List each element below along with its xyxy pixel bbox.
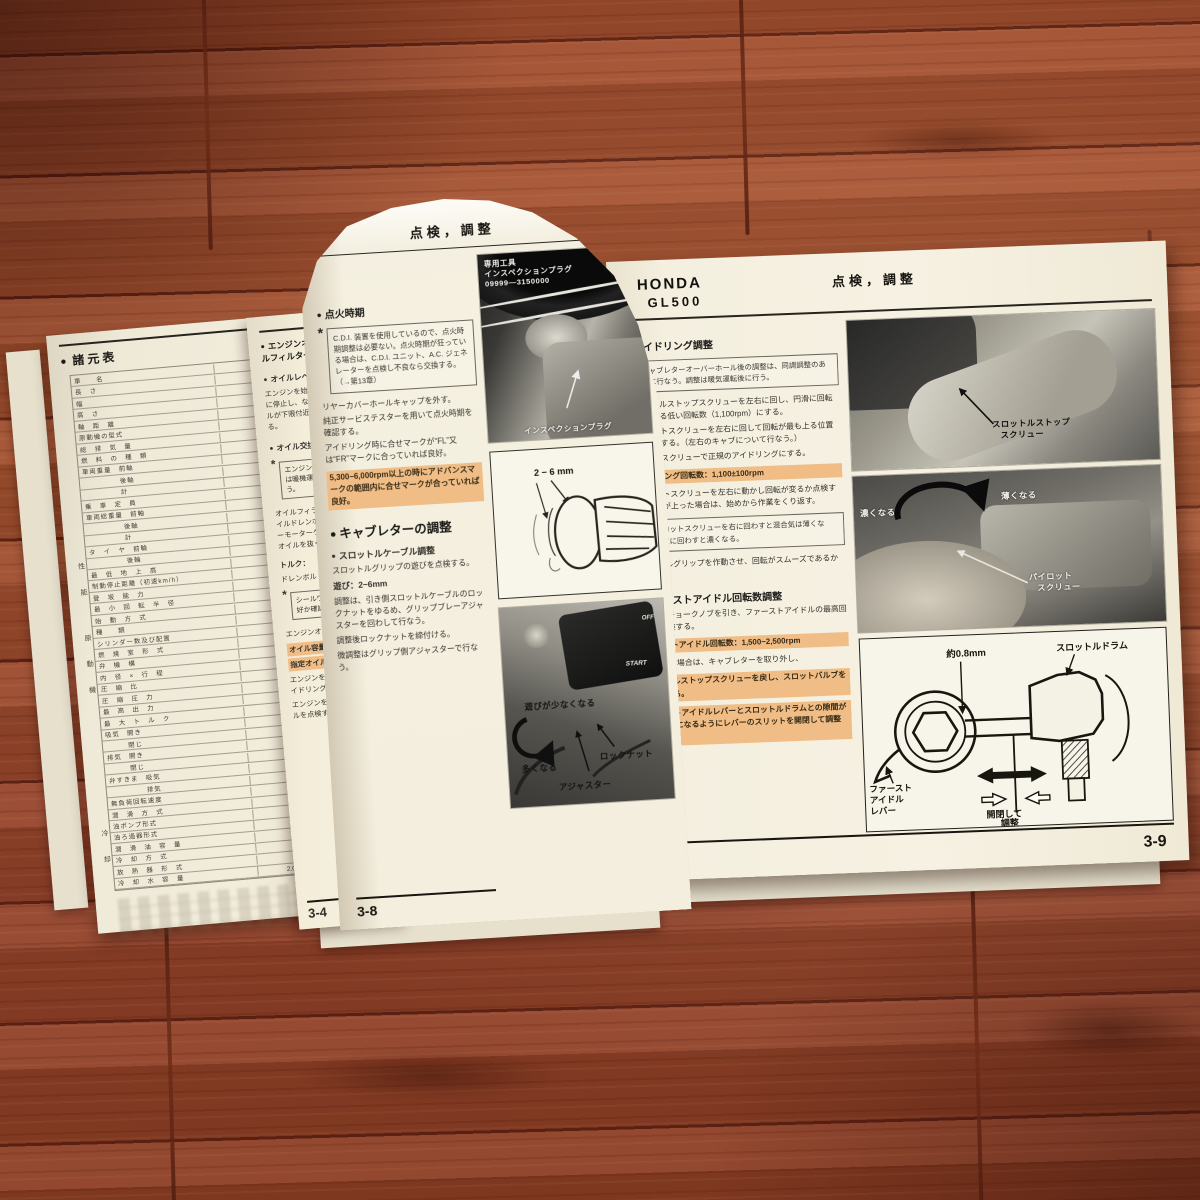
locknut-label: ロックナット [600,747,654,762]
page-number-3-9: 3-9 [1143,833,1167,852]
special-tool-label: 専用工具 インスペクションプラグ 09999—3150000 [484,254,574,289]
switch-housing [558,600,664,691]
bullet-icon: ● [330,528,337,540]
spec-group-label: 機 [89,685,97,696]
spec-group-label: 能 [80,587,88,598]
grip-play-dimension: 2 − 6 mm [534,466,574,478]
spec-group-label: 性 [78,561,86,572]
off-switch-label: OFF [642,615,654,622]
page-header-title: 点検，調整 [409,218,495,242]
diagram-fast-idle-lever: 約0.8mm [859,627,1174,833]
bullet-icon: ● [260,342,265,350]
wood-knot [300,1050,560,1100]
illustration-throttle-grip: 2 − 6 mm [489,442,662,600]
page-header: HONDA GL500 点検，調整 [623,257,1154,313]
adjuster-label: アジャスター [559,778,612,793]
brand-block: HONDA GL500 [637,274,703,312]
note-star-icon: * [282,588,288,602]
ignition-carb-text-column: ●点火時期*C.D.I. 装置を使用しているので、点火時期調整は必要ない。点火時… [314,256,508,890]
text-block-note: *キャブレターオーバーホール後の調整は、同調調整のあとに行なう。調整は暖気運転後… [635,353,839,393]
fast-idle-lever-label: ファースト [869,783,912,795]
wood-knot [1020,1000,1200,1060]
more-play-label: 多くなる [521,761,557,775]
spec-group-label: 却 [103,854,111,865]
grip-drawing: 2 − 6 mm [490,443,661,599]
throttle-stop-screw-label: スロットルストップ スクリュー [992,417,1071,441]
text-block-h1: ●点火時期 [316,297,473,321]
svg-text:調整: 調整 [1001,817,1019,829]
text-block-para: 調整は、引き側スロットルケーブルのロックナットをゆるめ、グリップブレーアジャスタ… [334,587,492,632]
photo-scene: ●諸元表 車 名長 さ幅高 さ軸 距 離原動機の型式総 排 気 量燃 料 の 種… [0,0,1200,1200]
bullet-icon: ● [316,310,322,320]
bullet-icon: ● [269,445,274,452]
page-body: ●アイドリング調整*キャブレターオーバーホール後の調整は、同調調整のあとに行なう… [625,309,1174,841]
page-header-title: 点検，調整 [832,268,918,290]
photo-throttle-stop-screw: スロットルストップ スクリュー [846,309,1160,471]
wood-knot [860,120,1060,160]
spec-group-label: 動 [86,659,94,670]
gap-dimension-label: 約0.8mm [946,647,986,661]
photo-cable-adjuster: START OFF 遊びが少なくなる 多くなる ロックナット アジャスター [499,598,675,808]
page-3-9: HONDA GL500 点検，調整 ●アイドリング調整*キャブレターオーバーホー… [606,241,1189,882]
text-block-note: *C.D.I. 装置を使用しているので、点火時期調整は必要ない。点火時期が狂って… [326,319,477,393]
note-star-icon: * [270,457,276,471]
text-block-note: *パイロットスクリューを右に回わすと混合気は薄くなり、左に回わすと濃くなる。 [641,513,845,553]
photo-column: スロットルストップ スクリュー 濃くなる 薄くなる [846,309,1173,832]
lean-mixture-label: 薄くなる [1001,488,1037,501]
note-star-icon: * [317,323,324,344]
model-name: GL500 [647,293,702,310]
bullet-icon: ● [263,376,268,383]
start-switch-label: START [626,659,647,667]
bullet-icon: ● [331,551,336,560]
bullet-icon: ● [60,356,70,368]
svg-text:レバー: レバー [870,805,896,816]
honda-wordmark: HONDA [637,274,703,293]
handlebar-bolt [523,621,551,649]
text-block-h1big: ●キャブレターの調整 [329,514,486,542]
page-body: ●点火時期*C.D.I. 装置を使用しているので、点火時期調整は必要ない。点火時… [314,245,680,890]
photo-pilot-screw: 濃くなる 薄くなる パイロット スクリュー [852,465,1166,633]
throttle-drum-label: スロットルドラム [1056,640,1128,653]
text-block-h1: ●アイドリング調整 [625,331,837,354]
rich-mixture-label: 濃くなる [860,506,896,519]
spec-group-label: 原 [84,633,92,644]
text-block-hl: 5,300−6,000rpm以上の時にアドバンスマークの範囲内に合せマークが合っ… [326,462,484,510]
spec-group-label: 冷 [101,829,109,840]
fast-idle-diagram: 約0.8mm [860,628,1173,832]
page-number-3-8: 3-8 [356,889,497,920]
pilot-screw-label: パイロット スクリュー [1029,571,1081,594]
svg-text:アイドル: アイドル [870,794,905,805]
less-play-label: 遊びが少なくなる [524,697,596,713]
